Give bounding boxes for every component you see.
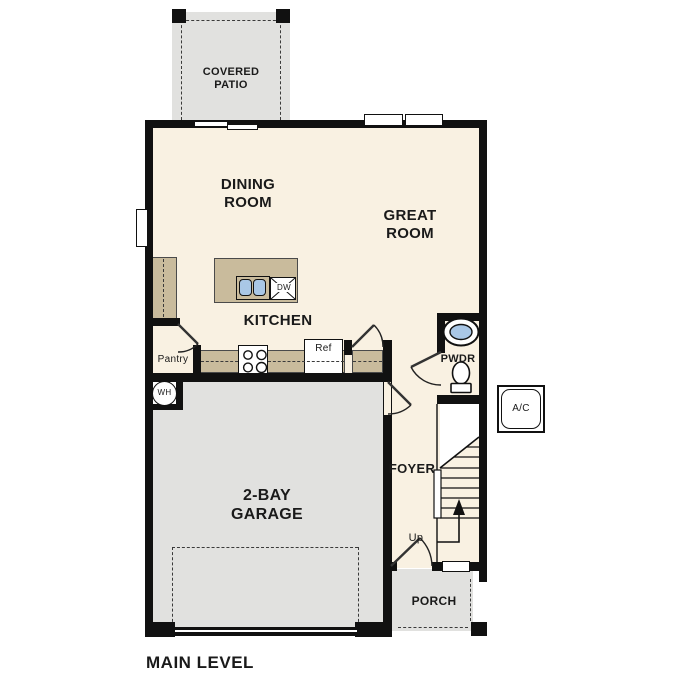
patio-slider-panel-1 (194, 121, 228, 127)
wall-pantry-top (147, 318, 180, 326)
kitchen-counter-dashline-2 (268, 361, 344, 362)
refrigerator: Ref (304, 339, 343, 375)
wall-post-kitchen-door (344, 340, 352, 355)
great-room-window-1 (364, 114, 403, 126)
porch-label: PORCH (407, 594, 461, 608)
dining-room-label-line2: ROOM (198, 194, 298, 212)
floor-plan: Ref WH A/C (0, 0, 687, 687)
garage-door-dashed-top (172, 547, 358, 548)
ac-unit: A/C (497, 385, 545, 433)
dining-room-label-line1: DINING (198, 176, 298, 194)
patio-post-right (276, 9, 290, 23)
porch-dashed-edge-right (470, 579, 471, 621)
stair-up-label: Up (402, 532, 430, 544)
powder-room-label: PWDR (436, 353, 480, 365)
porch-window (442, 561, 470, 572)
covered-patio-label-line2: PATIO (181, 79, 281, 92)
great-room-label-line1: GREAT (360, 207, 460, 225)
left-counter-dashline (163, 259, 164, 317)
wall-porch-corner-right (471, 622, 487, 636)
covered-patio-label: COVERED PATIO (181, 66, 281, 92)
great-room-window-2 (405, 114, 443, 126)
garage-entry-opening (384, 382, 391, 415)
pantry-label: Pantry (150, 354, 196, 365)
sink-basin-right (253, 279, 266, 296)
range-stove (238, 345, 268, 375)
covered-patio-label-line1: COVERED (181, 66, 281, 79)
wall-garage-corner-left (145, 622, 175, 637)
great-room-label: GREAT ROOM (360, 207, 460, 243)
kitchen-counter-dashline-1 (201, 361, 238, 362)
ac-unit-label: A/C (499, 403, 543, 414)
garage-door-panel-line (175, 630, 357, 632)
garage-door-dashed-right (358, 547, 359, 627)
garage-label-line1: 2-BAY (217, 486, 317, 505)
kitchen-label: KITCHEN (228, 312, 328, 329)
kitchen-counter-dashline-3 (353, 361, 382, 362)
patio-post-left (172, 9, 186, 23)
patio-dashed-edge-top (181, 20, 281, 21)
refrigerator-label: Ref (305, 343, 342, 354)
dining-room-window (136, 209, 148, 247)
garage-label-line2: GARAGE (217, 505, 317, 524)
garage-door-dashed-left (172, 547, 173, 627)
dishwasher-label: DW (276, 283, 292, 292)
great-room-label-line2: ROOM (360, 225, 460, 243)
wall-pwdr-left (437, 313, 445, 353)
dining-room-label: DINING ROOM (198, 176, 298, 212)
wall-garage-corner-right (355, 622, 392, 637)
water-heater: WH (152, 381, 177, 406)
garage-label: 2-BAY GARAGE (217, 486, 317, 524)
wall-right (479, 120, 487, 582)
porch-dashed-edge-bottom (398, 627, 468, 628)
wall-front-left (383, 562, 397, 571)
garage-door-panel (175, 627, 357, 636)
wall-kitchen-garage (145, 373, 392, 382)
plan-title: MAIN LEVEL (146, 653, 306, 673)
island-sink (236, 276, 270, 300)
wall-pwdr-bottom (437, 395, 487, 404)
water-heater-label: WH (153, 388, 176, 397)
foyer-label: FOYER (386, 461, 438, 476)
patio-slider-panel-2 (227, 124, 258, 130)
sink-basin-left (239, 279, 252, 296)
